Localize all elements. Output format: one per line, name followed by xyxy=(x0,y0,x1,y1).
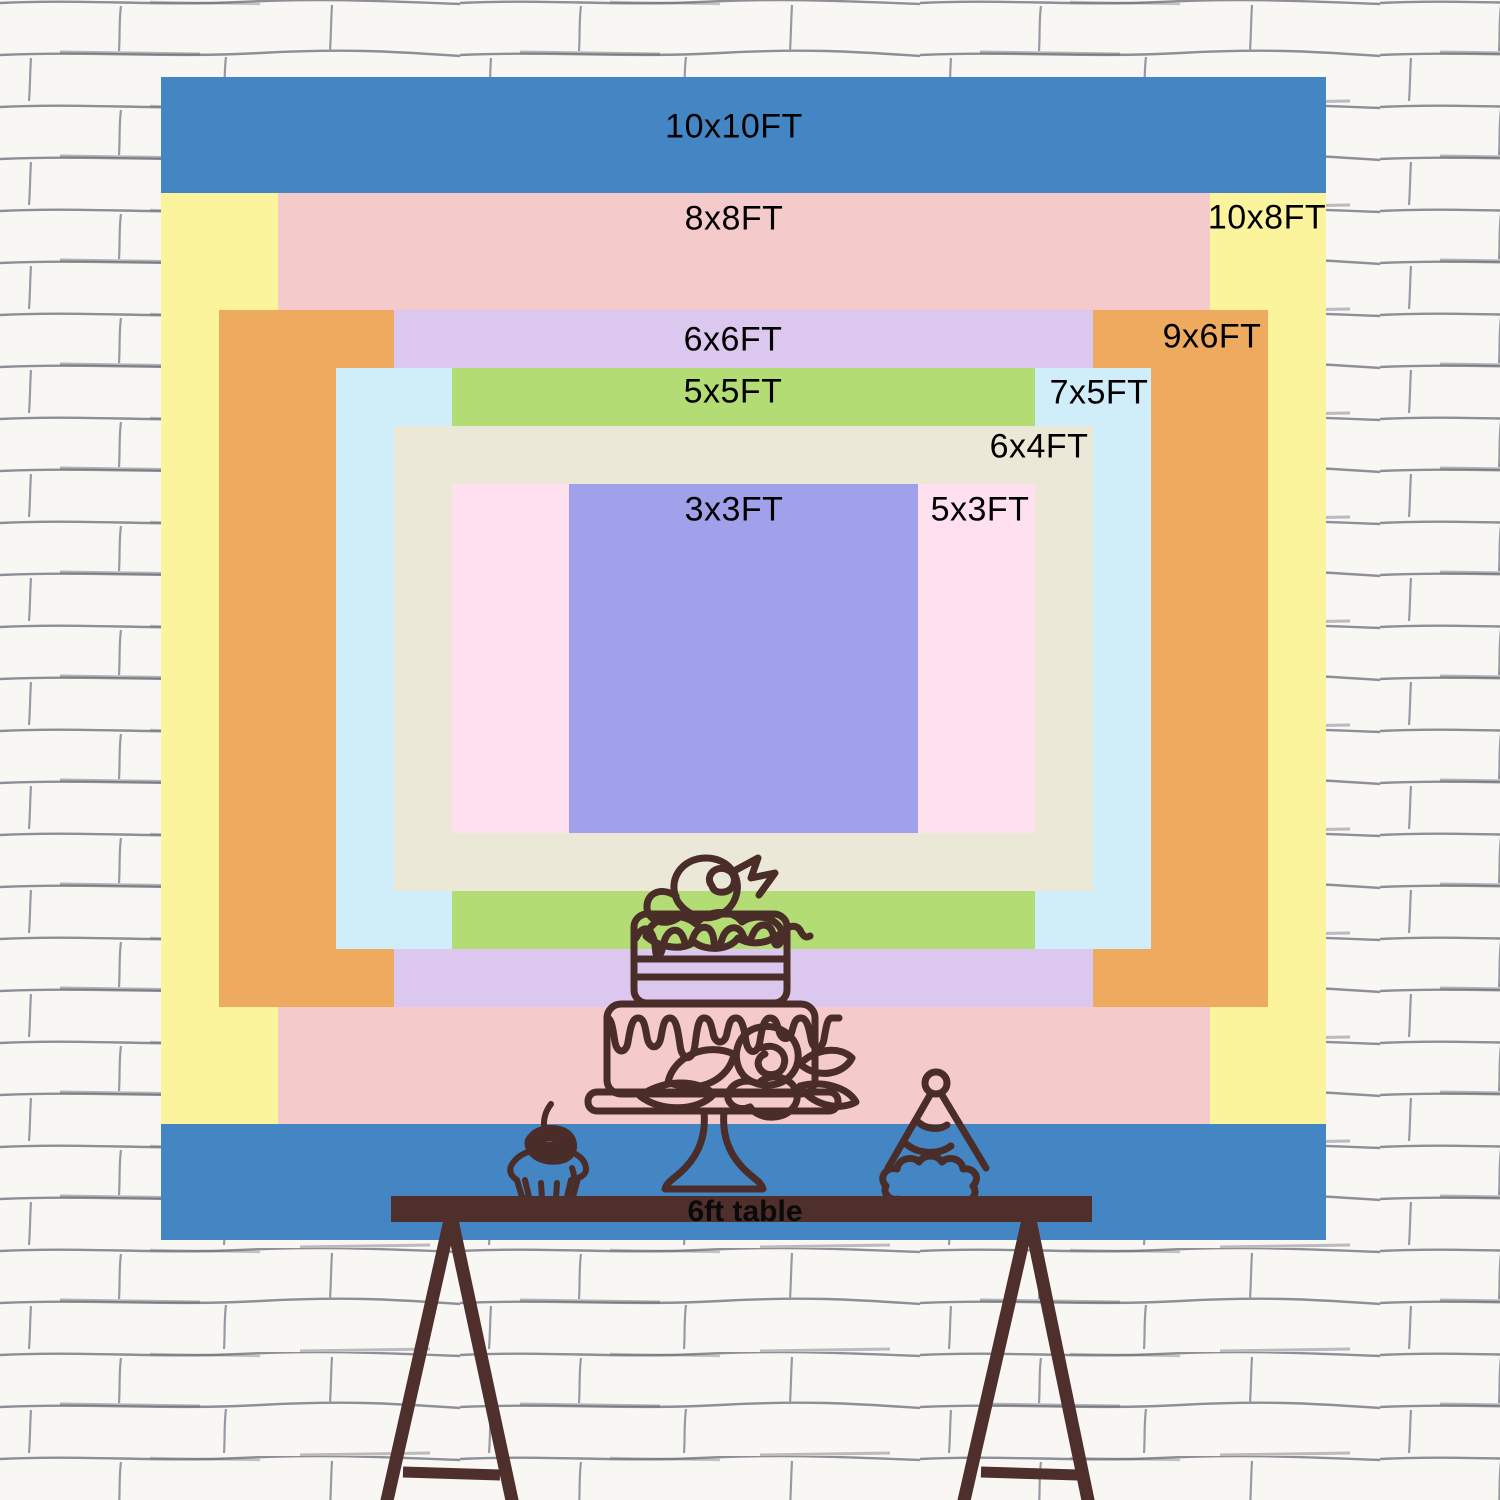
party-hat-icon xyxy=(883,1072,986,1208)
party-decorations xyxy=(0,0,1500,1500)
table-legs-icon xyxy=(386,1220,1089,1500)
table-label: 6ft table xyxy=(687,1195,802,1229)
cake-icon xyxy=(588,858,856,1189)
backdrop-size-chart: 10x10FT10x8FT8x8FT9x6FT6x6FT7x5FT5x5FT6x… xyxy=(0,0,1500,1500)
cupcake-icon xyxy=(510,1104,586,1202)
